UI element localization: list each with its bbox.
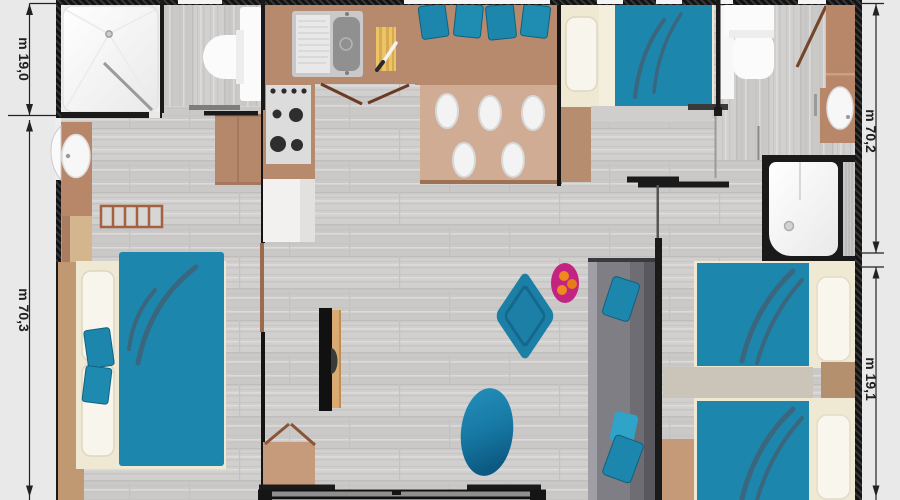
svg-text:m 19,1: m 19,1 (863, 357, 879, 401)
svg-text:m 70,3: m 70,3 (16, 288, 32, 332)
svg-text:m 19,0: m 19,0 (16, 37, 32, 81)
svg-text:m 70,2: m 70,2 (863, 109, 879, 153)
